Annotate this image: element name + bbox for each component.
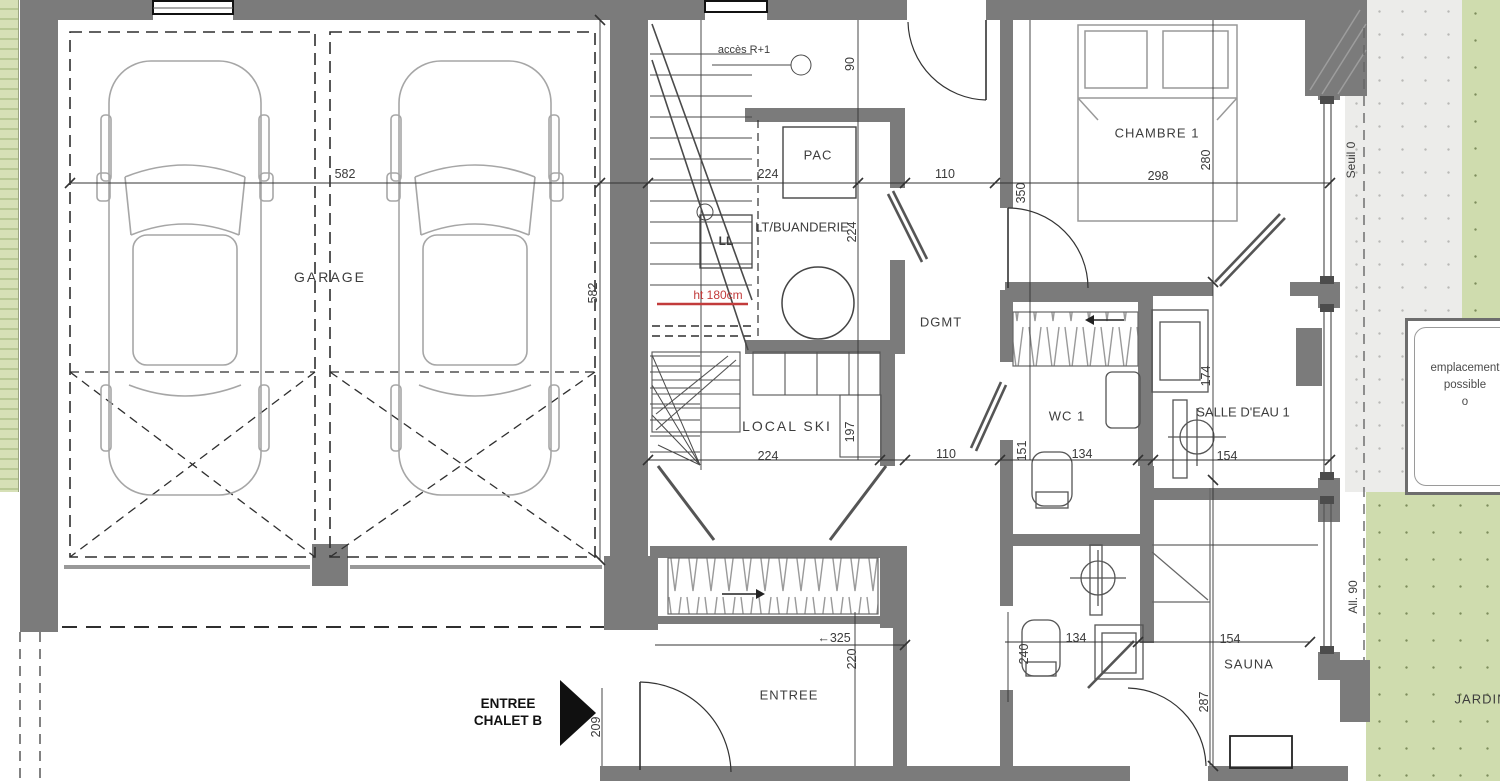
washer-box [700,215,752,268]
stair-symbol-circle [791,55,811,75]
door-salle-eau-1 [1215,214,1285,286]
bath2-toilet [1022,620,1060,676]
stairs [650,20,811,470]
parking-bay-1 [70,32,315,557]
car-1 [97,61,273,495]
water-heater-circle [782,267,854,339]
wc1-fixtures [1032,372,1140,508]
salle-eau-1-fixtures [1152,310,1226,478]
parking-bay-2 [330,32,595,557]
sauna-benches [1152,488,1318,768]
door-entree [640,682,731,772]
emplacement-note-text: emplacement possible o [1414,327,1500,486]
door-chambre-1 [1008,208,1088,288]
window-caps [1320,96,1334,654]
car-2 [387,61,563,495]
wc-wardrobe [1013,312,1138,366]
plan-linework [0,0,1500,781]
door-sauna-area [1088,641,1206,766]
sauna-window [1324,500,1331,652]
floor-plan: emplacement possible o ht 180cm Seuil 0 … [0,0,1500,781]
entree-wardrobe [668,558,878,614]
wc1-sink [1106,372,1140,428]
double-door-local-ski [658,466,886,540]
right-window-1 [1324,100,1331,282]
door-dgmt-top [908,20,986,100]
stair-window [705,1,767,12]
sauna-stove [1230,736,1292,768]
door-buanderie [888,191,927,262]
right-window-2 [1324,308,1331,478]
pac-unit [783,127,856,198]
bath2-fixtures [1022,545,1143,679]
emplacement-note-box: emplacement possible o [1405,318,1500,495]
